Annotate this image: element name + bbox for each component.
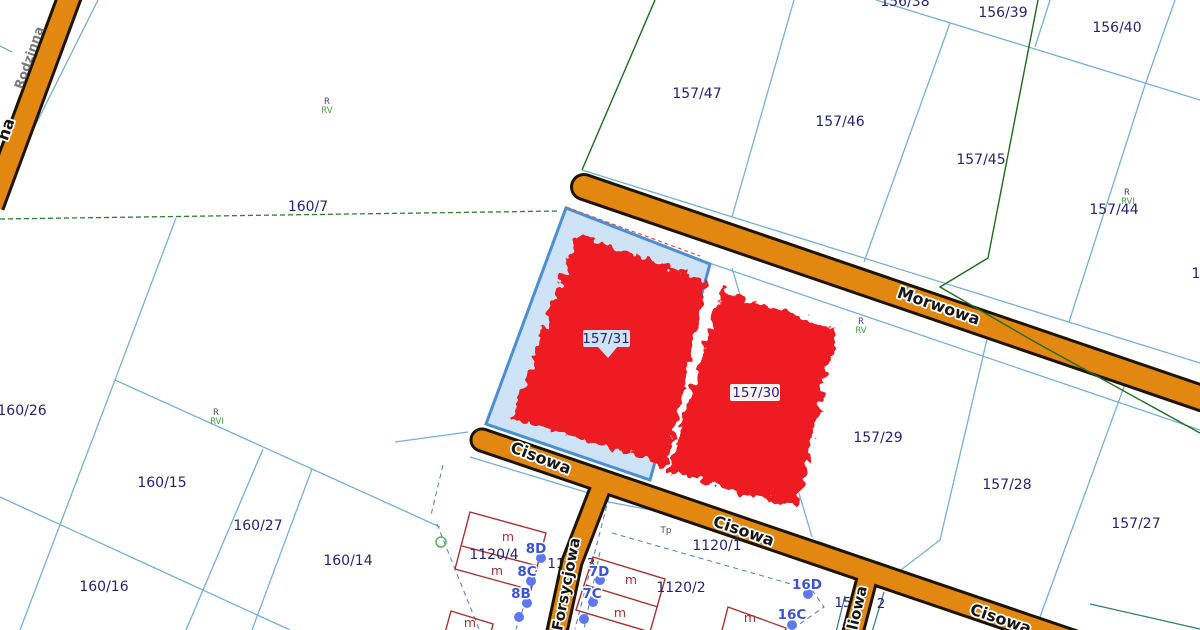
building-use-label: m bbox=[491, 563, 503, 578]
house-number-label: 8D bbox=[526, 541, 547, 557]
house-number-label: 7D bbox=[589, 564, 610, 580]
parcel-number-label: 160/15 bbox=[137, 475, 186, 491]
soil-class-label: RV bbox=[321, 106, 332, 116]
parcel-number-label: 160/26 bbox=[0, 403, 47, 419]
building-use-label: m bbox=[625, 572, 637, 587]
address-point-dot bbox=[579, 614, 589, 624]
parcel-number-label: 157/28 bbox=[982, 477, 1031, 493]
landuse-green-boundary bbox=[940, 0, 1200, 433]
parcel-number-label: 160/16 bbox=[79, 579, 128, 595]
building-use-label: m bbox=[744, 610, 756, 625]
parcel-number-label: 157/31 bbox=[582, 331, 630, 347]
parcel-number-label: 157/30 bbox=[732, 385, 780, 401]
partial-parcel-label: 2 bbox=[877, 596, 886, 612]
parcel-number-label: 156/40 bbox=[1092, 20, 1141, 36]
parcel-number-label: 1 bbox=[1192, 266, 1200, 282]
parcel-number-label: 157/29 bbox=[853, 430, 902, 446]
parcel-number-label: 160/27 bbox=[233, 518, 282, 534]
parcel-number-label: 156/38 bbox=[880, 0, 929, 10]
parcel-number-label: 157/45 bbox=[956, 152, 1005, 168]
building-use-label: m bbox=[502, 529, 514, 544]
house-number-label: 16C bbox=[778, 607, 807, 623]
misc-label: Tp bbox=[659, 526, 671, 536]
soil-class-label: RVI bbox=[210, 417, 224, 427]
soil-class-label: RV bbox=[855, 326, 866, 336]
cadastral-map-canvas[interactable]: 11315222 MorwowaCisowaCisowaCisowaForsyc… bbox=[0, 0, 1200, 630]
house-number-label: 8C bbox=[517, 564, 536, 580]
parcel-number-label: 1120/4 bbox=[469, 547, 518, 563]
parcel-number-label: 156/39 bbox=[978, 5, 1027, 21]
building-use-label: m bbox=[614, 605, 626, 620]
address-point-dot bbox=[514, 612, 524, 622]
soil-class-label: RVI bbox=[1121, 197, 1135, 207]
parcel-number-label: 160/14 bbox=[323, 553, 372, 569]
house-number-label: 7C bbox=[582, 586, 601, 602]
house-number-label: 16D bbox=[792, 577, 822, 593]
parcel-number-label: 160/7 bbox=[288, 199, 328, 215]
house-number-label: 8B bbox=[511, 586, 531, 602]
parcel-number-label: 157/27 bbox=[1111, 516, 1160, 532]
parcel-number-label: 157/47 bbox=[672, 86, 721, 102]
parcel-number-label: 1120/2 bbox=[656, 580, 705, 596]
parcel-number-label: 157/46 bbox=[815, 114, 864, 130]
building-use-label: m bbox=[464, 615, 476, 630]
parcel-number-label: 1120/1 bbox=[692, 538, 741, 554]
